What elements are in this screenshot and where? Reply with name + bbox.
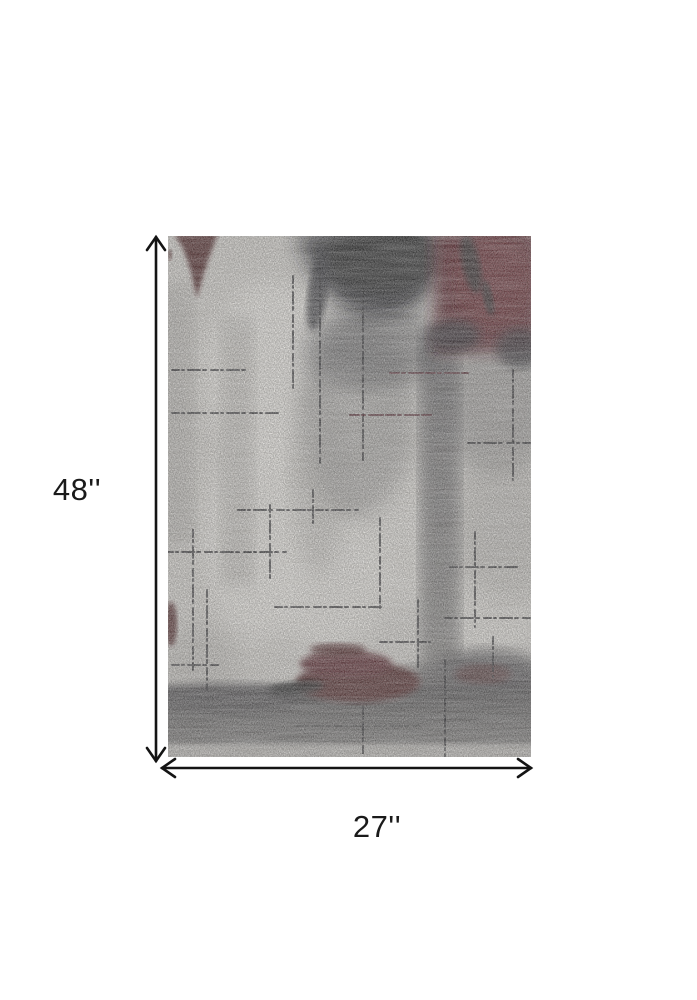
width-dimension-arrow (158, 754, 535, 782)
rug-grain-overlay (168, 236, 531, 757)
width-dimension-label: 27'' (322, 808, 432, 846)
product-dimension-image: 48'' 27'' (0, 0, 697, 1000)
rug-image (168, 236, 531, 757)
height-dimension-label: 48'' (22, 471, 132, 509)
height-dimension-arrow (142, 233, 171, 765)
